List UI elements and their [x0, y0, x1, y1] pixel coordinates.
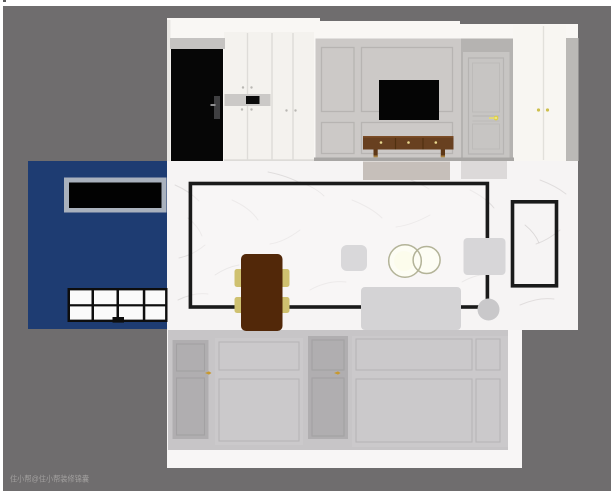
svg-text:住小帮@住小帮装修锦囊: 住小帮@住小帮装修锦囊	[10, 474, 89, 484]
